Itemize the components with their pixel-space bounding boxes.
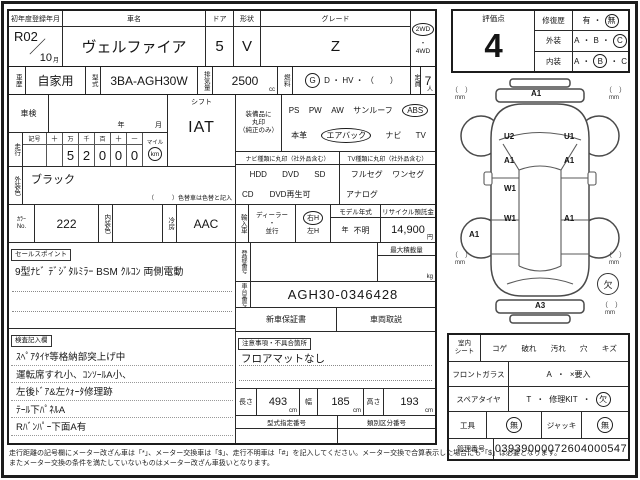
exterior-dot: ・ xyxy=(583,35,591,46)
mileage-unit-cell: マイル km xyxy=(143,133,167,166)
mileage-header-10: 十 xyxy=(111,133,126,145)
bracket-bottom-right: （ ） xyxy=(605,250,626,260)
width-label: 幅 xyxy=(300,389,318,415)
equip-navi: ナビ xyxy=(385,130,401,141)
inspection-row: 車検 年 月 xyxy=(9,95,167,133)
diagram-label-right-quarter: A1 xyxy=(564,214,574,223)
inspector-note-line: ｽﾍﾟｱﾀｲﾔ等格納部突上げ中 xyxy=(11,348,233,366)
type-number-header: 型式指定番号 類別区分番号 xyxy=(236,416,435,429)
exterior-color-row: 外装色 ブラック （ ）色替車は色替と記入 xyxy=(9,167,235,205)
equip-airbag-circled: エアバック xyxy=(321,128,371,143)
inspection-value-area: 年 月 xyxy=(49,95,167,132)
fuel-cell: G D ・ HV ・ （ ） xyxy=(293,67,411,94)
exterior-dot: ・ xyxy=(602,35,610,46)
inspector-notes-label: 検査記入欄 xyxy=(11,335,52,347)
type-number-values xyxy=(236,429,435,443)
tv-type-row-1: フルセグ ワンセグ xyxy=(340,165,435,185)
mileage-col-symbol: 記号 xyxy=(23,133,47,166)
footer-notes: 走行距離の記号欄にメーター改ざん車は「*」、メーター交換車は「$」、走行不明車は… xyxy=(9,449,631,468)
sales-points-text: 9型ﾅﾋﾞ ﾃﾞｼﾞﾀﾙﾐﾗｰ BSM ｸﾙｺﾝ 両側電動 xyxy=(9,262,235,278)
equipment-label-1: 装備品に xyxy=(246,111,272,119)
color-number-value: 222 xyxy=(35,205,99,242)
grade-cell: グレード Z xyxy=(261,11,411,66)
header-row: 初年度登録年月 R02 ／ 10 月 車名 ヴェルファイア ドア 5 形状 V xyxy=(9,11,435,66)
car-name-label: 車名 xyxy=(63,11,205,27)
interior-seat-row: 室内 シート コゲ 破れ 汚れ 穴 キズ xyxy=(449,335,628,362)
spare-kit: 修理KIT xyxy=(549,394,577,405)
sales-points-label: セールスポイント xyxy=(11,249,71,261)
mileage-digit-100k xyxy=(47,145,62,166)
exterior-color-body: ブラック （ ）色替車は色替と記入 xyxy=(23,167,235,204)
seat-hole: 穴 xyxy=(580,343,588,354)
interior-seat-label-top: 室内 xyxy=(458,340,471,348)
windshield-value: A ・ ×要入 xyxy=(509,362,628,386)
tool-none-circled: 無 xyxy=(506,417,522,433)
shift-value: IAT xyxy=(188,119,215,137)
footer-line-2: またメーター交換の条件を満たしていないものはメーター改ざん車扱いとなります。 xyxy=(9,459,631,469)
mm-bottom-right: mm xyxy=(609,260,619,266)
door-cell: ドア 5 xyxy=(206,11,234,66)
displacement-value: 2500 xyxy=(232,74,259,88)
bracket-below-missing: （ ） xyxy=(601,300,622,310)
shape-label: 形状 xyxy=(234,11,260,27)
height-label: 高さ xyxy=(364,389,384,415)
seat-tear: 破れ xyxy=(521,343,536,354)
mileage-digit-symbol xyxy=(23,145,46,166)
recycle-deposit-label: リサイクル預託金 xyxy=(381,205,435,218)
mileage-col-10k: 万 5 xyxy=(63,133,79,166)
equip-pw: PW xyxy=(309,106,322,115)
mileage-header-symbol: 記号 xyxy=(23,133,46,145)
shift-label: シフト xyxy=(191,97,212,107)
capacity-unit: 人 xyxy=(427,84,433,93)
registration-number-label: 登録番号 xyxy=(236,243,251,281)
interior-grade-label: 内装 xyxy=(535,52,573,71)
nav-dvd-play: DVD再生可 xyxy=(270,189,311,200)
left-column: 車検 年 月 走行 記号 xyxy=(9,95,236,443)
interior-dot: ・ xyxy=(610,56,618,67)
damage-diagram: A1 U2 U1 A1 A1 W1 W1 A1 A1 A3 （ ） mm （ ）… xyxy=(447,74,633,332)
inspection-month-label: 月 xyxy=(155,120,162,130)
body-area: 車検 年 月 走行 記号 xyxy=(9,95,435,443)
exterior-color-note: （ ）色替車は色替と記入 xyxy=(148,193,232,202)
mileage-digit-10k: 5 xyxy=(63,145,78,166)
exterior-c-circled: C xyxy=(613,34,627,48)
km-circled: km xyxy=(148,147,162,161)
caution-text: フロアマットなし xyxy=(236,351,435,366)
fuel-gasoline-circled: G xyxy=(305,73,320,88)
mileage-col-1k: 千 2 xyxy=(79,133,95,166)
model-year-value: 不明 xyxy=(354,225,370,236)
interior-grade-row: 内装 A ・ B ・ C xyxy=(535,52,628,71)
drive-type-cell: 2WD ・ 4WD xyxy=(411,11,435,66)
model-code-label: 型式 xyxy=(86,67,101,94)
new-car-warranty-label: 新車保証書 xyxy=(236,308,337,331)
mileage-col-100: 百 0 xyxy=(95,133,111,166)
max-load-value-area: kg xyxy=(378,256,435,281)
mileage-label: 走行 xyxy=(9,133,23,166)
spare-t: T xyxy=(526,395,531,404)
nav-type-header: ナビ種類に丸印（社外品含む） xyxy=(236,152,339,165)
nav-cd: CD xyxy=(242,190,254,199)
diagram-missing-circled: 欠 xyxy=(597,273,619,295)
color-number-label: ｶﾗｰ No. xyxy=(9,205,35,242)
ac-value: AAC xyxy=(177,205,235,242)
rating-detail: 修復歴 有 ・ 無 外装 A ・ B ・ C 内装 xyxy=(535,11,628,71)
tv-analog: アナログ xyxy=(346,189,378,200)
width-unit: cm xyxy=(353,408,361,414)
drive-2wd-circled: 2WD xyxy=(412,23,434,36)
registration-month-unit: 月 xyxy=(53,55,59,64)
jack-value: 無 xyxy=(582,412,628,438)
diagram-label-rear-bumper: A3 xyxy=(535,301,545,310)
tool-value: 無 xyxy=(487,412,542,438)
chassis-number-label: 車台番号 xyxy=(236,282,251,307)
door-label: ドア xyxy=(206,11,233,27)
equipment-row-1: PS PW AW サンルーフ ABS xyxy=(284,104,433,117)
chassis-number-value: AGH30-0346428 xyxy=(251,282,435,307)
tv-oneseg: ワンセグ xyxy=(392,169,424,180)
diagram-label-left-front-door: A1 xyxy=(504,156,514,165)
caution-label: 注意事項・不具合箇所 xyxy=(238,338,311,350)
diagram-label-left-rear-wheel: A1 xyxy=(469,230,479,239)
model-year-value-area: 年 不明 xyxy=(331,218,380,242)
classification-label: 類別区分番号 xyxy=(338,416,435,428)
interior-color-value xyxy=(113,205,163,242)
model-year-label: モデル年式 xyxy=(331,205,380,218)
spare-dot: ・ xyxy=(583,394,591,405)
inspection-label: 車検 xyxy=(9,95,49,132)
mile-label: マイル xyxy=(147,138,164,146)
spare-tire-label: スペアタイヤ xyxy=(449,387,509,411)
mileage-digit-1: 0 xyxy=(127,145,142,166)
diagram-label-right-front-door: A1 xyxy=(564,156,574,165)
warranty-row: 新車保証書 車両取説 xyxy=(236,308,435,332)
bracket-bottom-left: （ ） xyxy=(451,250,472,260)
seat-stain: 汚れ xyxy=(551,343,566,354)
exterior-color-label: 外装色 xyxy=(9,167,23,204)
interior-color-label: 内装色 xyxy=(99,205,113,242)
dotted-line xyxy=(12,291,232,292)
spare-tire-value: T ・ 修理KIT ・ 欠 xyxy=(509,387,628,411)
first-registration-cell: 初年度登録年月 R02 ／ 10 月 xyxy=(9,11,63,66)
width-value: 185 xyxy=(331,396,349,408)
mileage-digit-10: 0 xyxy=(111,145,126,166)
exterior-grade-label: 外装 xyxy=(535,31,573,50)
mileage-header-1k: 千 xyxy=(79,133,94,145)
seat-burn: コゲ xyxy=(492,343,507,354)
equipment-label: 装備品に 丸印 （純正のみ） xyxy=(236,95,282,151)
equipment-grid: PS PW AW サンルーフ ABS 本革 エアバック ナビ TV xyxy=(282,95,435,151)
mileage-digit-1k: 2 xyxy=(79,145,94,166)
windshield-dot: ・ xyxy=(557,369,565,380)
ac-label: 冷房 xyxy=(163,205,177,242)
recycle-deposit-value: 14,900 xyxy=(391,224,425,236)
mileage-col-1: 一 0 xyxy=(127,133,143,166)
equipment-row: 装備品に 丸印 （純正のみ） PS PW AW サンルーフ ABS xyxy=(236,95,435,152)
equip-ps: PS xyxy=(289,106,300,115)
interior-seat-label-bottom: シート xyxy=(455,348,475,356)
tool-label: 工具 xyxy=(449,412,487,438)
fuel-options: D ・ HV ・ （ ） xyxy=(324,75,398,86)
shift-cell: シフト IAT xyxy=(168,95,235,166)
exterior-grade-value: A ・ B ・ C xyxy=(573,31,628,50)
diagram-label-right-front-fender: U1 xyxy=(564,132,574,141)
auction-sheet-page: 初年度登録年月 R02 ／ 10 月 車名 ヴェルファイア ドア 5 形状 V xyxy=(0,0,640,480)
equip-leather: 本革 xyxy=(291,130,307,141)
nav-type-row-1: HDD DVD SD xyxy=(236,165,339,185)
history-label: 車歴 xyxy=(9,67,26,94)
tools-row: 工具 無 ジャッキ 無 xyxy=(449,412,628,439)
diagram-label-left-front-fender: U2 xyxy=(504,132,514,141)
registration-number-row: 登録番号 最大積載量 kg xyxy=(236,243,435,282)
length-cell: 493 cm xyxy=(257,389,300,415)
dealer-label: ディーラー xyxy=(256,212,288,220)
max-load-label: 最大積載量 xyxy=(378,243,435,256)
mileage-header-10k: 万 xyxy=(63,133,78,145)
left-handle: 左H xyxy=(307,226,319,236)
vehicle-manual-label: 車両取説 xyxy=(337,308,435,331)
shaken-mileage-sub: 車検 年 月 走行 記号 xyxy=(9,95,168,166)
dimensions-row: 長さ 493 cm 幅 185 cm 高さ 193 cm xyxy=(236,389,435,416)
mileage-col-100k: 十 xyxy=(47,133,63,166)
interior-seat-items: コゲ 破れ 汚れ 穴 キズ xyxy=(481,335,628,361)
grade-value: Z xyxy=(261,27,410,66)
spare-missing-circled: 欠 xyxy=(596,392,611,407)
exterior-grade-row: 外装 A ・ B ・ C xyxy=(535,31,628,51)
first-registration-label: 初年度登録年月 xyxy=(9,11,62,27)
bracket-top-right: （ ） xyxy=(605,85,626,95)
dealer-cell: ディーラー ・ 並行 xyxy=(249,205,296,242)
type-designation-value xyxy=(236,429,338,443)
recycle-deposit-unit: 円 xyxy=(427,232,433,241)
equip-tv: TV xyxy=(416,131,426,140)
tv-type-box: TV種類に丸印（社外品含む） フルセグ ワンセグ アナログ xyxy=(340,152,435,204)
interior-b-circled: B xyxy=(593,54,607,68)
length-unit: cm xyxy=(289,408,297,414)
sales-points-box: セールスポイント 9型ﾅﾋﾞ ﾃﾞｼﾞﾀﾙﾐﾗｰ BSM ｸﾙｺﾝ 両側電動 xyxy=(9,243,235,329)
inspector-notes-box: 検査記入欄 ｽﾍﾟｱﾀｲﾔ等格納部突上げ中 運転席すれ小、ｺﾝｿｰﾙA小、 左後… xyxy=(9,329,235,443)
diagram-label-left-quarter: W1 xyxy=(504,214,516,223)
nav-type-row-2: CD DVD再生可 xyxy=(236,185,339,205)
color-number-row: ｶﾗｰ No. 222 内装色 冷房 AAC xyxy=(9,205,235,243)
mileage-header-100k: 十 xyxy=(47,133,62,145)
capacity-cell: 7 人 xyxy=(421,67,435,94)
recycle-deposit-value-area: 14,900 円 xyxy=(381,218,435,242)
type-number-section: 型式指定番号 類別区分番号 xyxy=(236,416,435,443)
interior-a: A xyxy=(574,57,579,66)
rating-box: 評価点 4 修復歴 有 ・ 無 外装 A ・ B ・ C xyxy=(451,9,630,73)
jack-label: ジャッキ xyxy=(542,412,582,438)
displacement-label: 排気量 xyxy=(198,67,213,94)
dotted-line xyxy=(239,365,432,366)
mileage-grid: 記号 十 万 5 xyxy=(23,133,143,166)
exterior-a: A xyxy=(574,36,579,45)
middle-column: 装備品に 丸印 （純正のみ） PS PW AW サンルーフ ABS xyxy=(236,95,435,443)
repair-dot: ・ xyxy=(594,15,602,26)
equip-sunroof: サンルーフ xyxy=(353,105,393,116)
repair-history-row: 修復歴 有 ・ 無 xyxy=(535,11,628,31)
windshield-label: フロントガラス xyxy=(449,362,509,386)
right-handle-circled: 右H xyxy=(303,211,323,225)
height-unit: cm xyxy=(425,408,433,414)
displacement-cell: 2500 cc xyxy=(213,67,278,94)
color-number-label-bottom: No. xyxy=(17,224,26,231)
height-cell: 193 cm xyxy=(384,389,435,415)
model-year-cell: モデル年式 年 不明 xyxy=(331,205,381,242)
model-code-value: 3BA-AGH30W xyxy=(101,67,198,94)
windshield-row: フロントガラス A ・ ×要入 xyxy=(449,362,628,387)
repair-no-circled: 無 xyxy=(605,14,619,28)
inspector-note-line: Rﾊﾞﾝﾊﾟｰ下面A有 xyxy=(11,418,233,436)
dealer-dot: ・ xyxy=(269,220,276,228)
diagram-label-front-bumper: A1 xyxy=(531,89,541,98)
car-name-cell: 車名 ヴェルファイア xyxy=(63,11,206,66)
interior-dot: ・ xyxy=(582,56,590,67)
nav-tv-row: ナビ種類に丸印（社外品含む） HDD DVD SD CD DVD再生可 TV種類… xyxy=(236,152,435,205)
rating-score-cell: 評価点 4 xyxy=(453,11,535,71)
exterior-b: B xyxy=(594,36,599,45)
rating-label: 評価点 xyxy=(453,11,534,26)
windshield-x: ×要入 xyxy=(570,369,591,380)
tv-type-header: TV種類に丸印（社外品含む） xyxy=(340,152,435,165)
car-name-value: ヴェルファイア xyxy=(63,27,205,66)
mm-top-left: mm xyxy=(455,95,465,101)
diagram-label-left-rear-door: W1 xyxy=(504,184,516,193)
dotted-line xyxy=(239,380,432,381)
door-value: 5 xyxy=(206,27,233,66)
nav-sd: SD xyxy=(314,170,325,179)
seat-scratch: キズ xyxy=(602,343,617,354)
dotted-line xyxy=(12,311,232,312)
model-year-year: 年 xyxy=(342,225,349,235)
length-label: 長さ xyxy=(236,389,257,415)
classification-value xyxy=(338,429,435,443)
registration-number-value xyxy=(251,243,378,281)
mm-below-missing: mm xyxy=(605,310,615,316)
rating-score: 4 xyxy=(453,26,534,71)
windshield-a: A xyxy=(546,370,551,379)
jack-none-circled: 無 xyxy=(597,417,613,433)
mileage-digit-100: 0 xyxy=(95,145,110,166)
type-designation-label: 型式指定番号 xyxy=(236,416,338,428)
import-label: 輸入車 xyxy=(236,205,249,242)
footer-line-1: 走行距離の記号欄にメーター改ざん車は「*」、メーター交換車は「$」、走行不明車は… xyxy=(9,449,631,459)
interior-grade-value: A ・ B ・ C xyxy=(573,52,628,71)
registration-month: 10 xyxy=(40,52,52,64)
mileage-header-1: 一 xyxy=(127,133,142,145)
max-load-cell: 最大積載量 kg xyxy=(378,243,435,281)
handle-cell: 右H 左H xyxy=(296,205,331,242)
grade-label: グレード xyxy=(261,11,410,27)
repair-yes: 有 xyxy=(583,15,591,26)
exterior-color-value: ブラック xyxy=(31,171,75,187)
nav-hdd: HDD xyxy=(250,170,267,179)
import-row: 輸入車 ディーラー ・ 並行 右H 左H モデル年式 年 不明 xyxy=(236,205,435,243)
history-value: 自家用 xyxy=(26,67,86,94)
fuel-label: 燃料 xyxy=(278,67,293,94)
parallel-label: 並行 xyxy=(266,228,279,236)
shape-cell: 形状 V xyxy=(234,11,261,66)
repair-history-value: 有 ・ 無 xyxy=(573,11,628,30)
shaken-mileage-row: 車検 年 月 走行 記号 xyxy=(9,95,235,167)
interior-c: C xyxy=(621,57,627,66)
width-cell: 185 cm xyxy=(318,389,364,415)
spec-row: 車歴 自家用 型式 3BA-AGH30W 排気量 2500 cc 燃料 G D … xyxy=(9,67,435,95)
drive-dot: ・ xyxy=(420,37,427,47)
max-load-unit: kg xyxy=(427,274,433,280)
tv-type-row-2: アナログ xyxy=(340,185,435,205)
condition-table: 室内 シート コゲ 破れ 汚れ 穴 キズ フロントガラス A ・ ×要入 スペア… xyxy=(447,333,630,461)
height-value: 193 xyxy=(400,396,418,408)
nav-type-box: ナビ種類に丸印（社外品含む） HDD DVD SD CD DVD再生可 xyxy=(236,152,340,204)
tv-fullseg: フルセグ xyxy=(351,169,383,180)
mm-top-right: mm xyxy=(609,95,619,101)
length-value: 493 xyxy=(269,396,287,408)
interior-seat-label: 室内 シート xyxy=(449,335,481,361)
mileage-row: 走行 記号 十 xyxy=(9,133,167,166)
recycle-deposit-cell: リサイクル預託金 14,900 円 xyxy=(381,205,435,242)
first-registration-value: R02 ／ 10 月 xyxy=(9,27,62,66)
capacity-label: 定員 xyxy=(411,67,421,94)
drive-4wd: 4WD xyxy=(416,48,430,55)
inspection-year-label: 年 xyxy=(117,120,124,130)
mileage-col-10: 十 0 xyxy=(111,133,127,166)
inspector-note-line: 左後ﾄﾞｱ&左ｸｫｰﾀ修理跡 xyxy=(11,383,233,401)
mileage-header-100: 百 xyxy=(95,133,110,145)
chassis-number-row: 車台番号 AGH30-0346428 xyxy=(236,282,435,308)
displacement-unit: cc xyxy=(269,87,275,93)
equip-abs-circled: ABS xyxy=(402,104,428,117)
caution-box: 注意事項・不具合箇所 フロアマットなし xyxy=(236,332,435,389)
spare-dot: ・ xyxy=(536,394,544,405)
nav-dvd: DVD xyxy=(282,170,299,179)
equipment-label-3: （純正のみ） xyxy=(239,127,278,135)
mm-bottom-left: mm xyxy=(455,260,465,266)
equipment-row-2: 本革 エアバック ナビ TV xyxy=(284,128,433,143)
bracket-top-left: （ ） xyxy=(451,85,472,95)
inspector-note-line: ﾃｰﾙ下ﾊﾟﾈﾙA xyxy=(11,401,233,419)
main-table: 初年度登録年月 R02 ／ 10 月 車名 ヴェルファイア ドア 5 形状 V xyxy=(7,9,437,445)
spare-tire-row: スペアタイヤ T ・ 修理KIT ・ 欠 xyxy=(449,387,628,412)
color-number-label-top: ｶﾗｰ xyxy=(17,217,26,224)
equipment-label-2: 丸印 xyxy=(252,119,265,127)
shape-value: V xyxy=(234,27,260,66)
repair-history-label: 修復歴 xyxy=(535,11,573,30)
equip-aw: AW xyxy=(331,106,344,115)
inspector-note-line: 運転席すれ小、ｺﾝｿｰﾙA小、 xyxy=(11,366,233,384)
